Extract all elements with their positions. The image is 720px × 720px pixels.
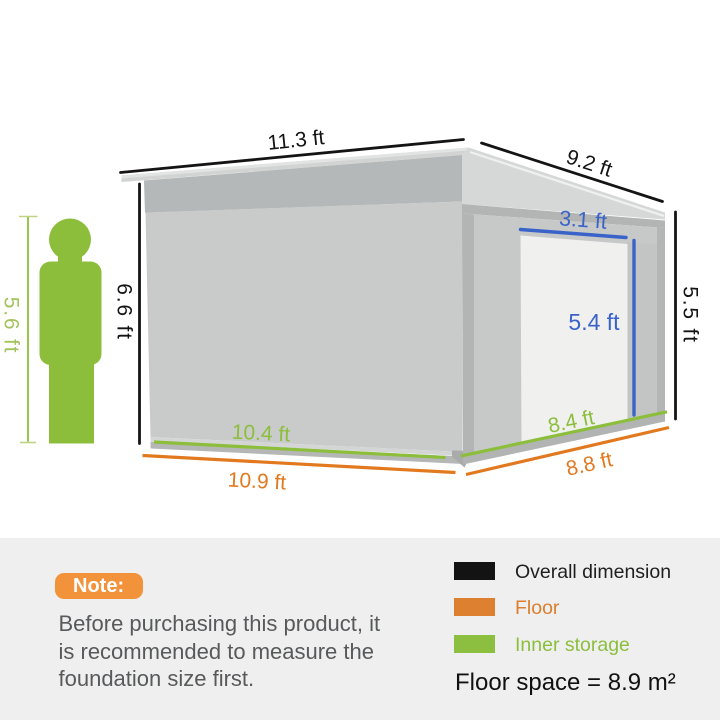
svg-text:5.5 ft: 5.5 ft [679,286,702,344]
svg-text:5.4 ft: 5.4 ft [568,309,620,335]
svg-text:10.4 ft: 10.4 ft [231,421,291,447]
svg-text:9.2 ft: 9.2 ft [563,145,615,181]
svg-text:5.6 ft: 5.6 ft [0,297,23,355]
svg-text:10.9 ft: 10.9 ft [227,468,287,494]
svg-text:11.3 ft: 11.3 ft [267,126,326,155]
svg-text:3.1 ft: 3.1 ft [558,206,607,234]
svg-text:8.8 ft: 8.8 ft [564,448,615,481]
svg-text:6.6 ft: 6.6 ft [113,283,136,341]
